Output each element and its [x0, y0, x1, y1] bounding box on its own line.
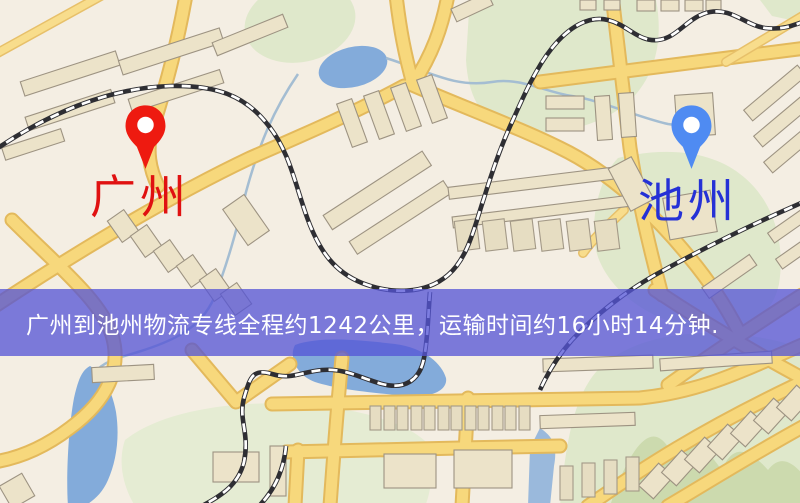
origin-pin-shape [126, 105, 166, 168]
origin-pin-icon[interactable] [122, 103, 169, 172]
origin-city-label: 广州 [90, 174, 190, 220]
destination-pin-shape [672, 105, 712, 168]
map-screenshot: 广州 池州 广州到池州物流专线全程约1242公里，运输时间约16小时14分钟. [0, 0, 800, 503]
route-info-text: 广州到池州物流专线全程约1242公里，运输时间约16小时14分钟. [26, 306, 719, 340]
destination-city-label: 池州 [638, 178, 738, 224]
map-background [0, 0, 800, 503]
destination-pin-icon[interactable] [668, 103, 715, 172]
route-info-banner: 广州到池州物流专线全程约1242公里，运输时间约16小时14分钟. [0, 289, 800, 356]
